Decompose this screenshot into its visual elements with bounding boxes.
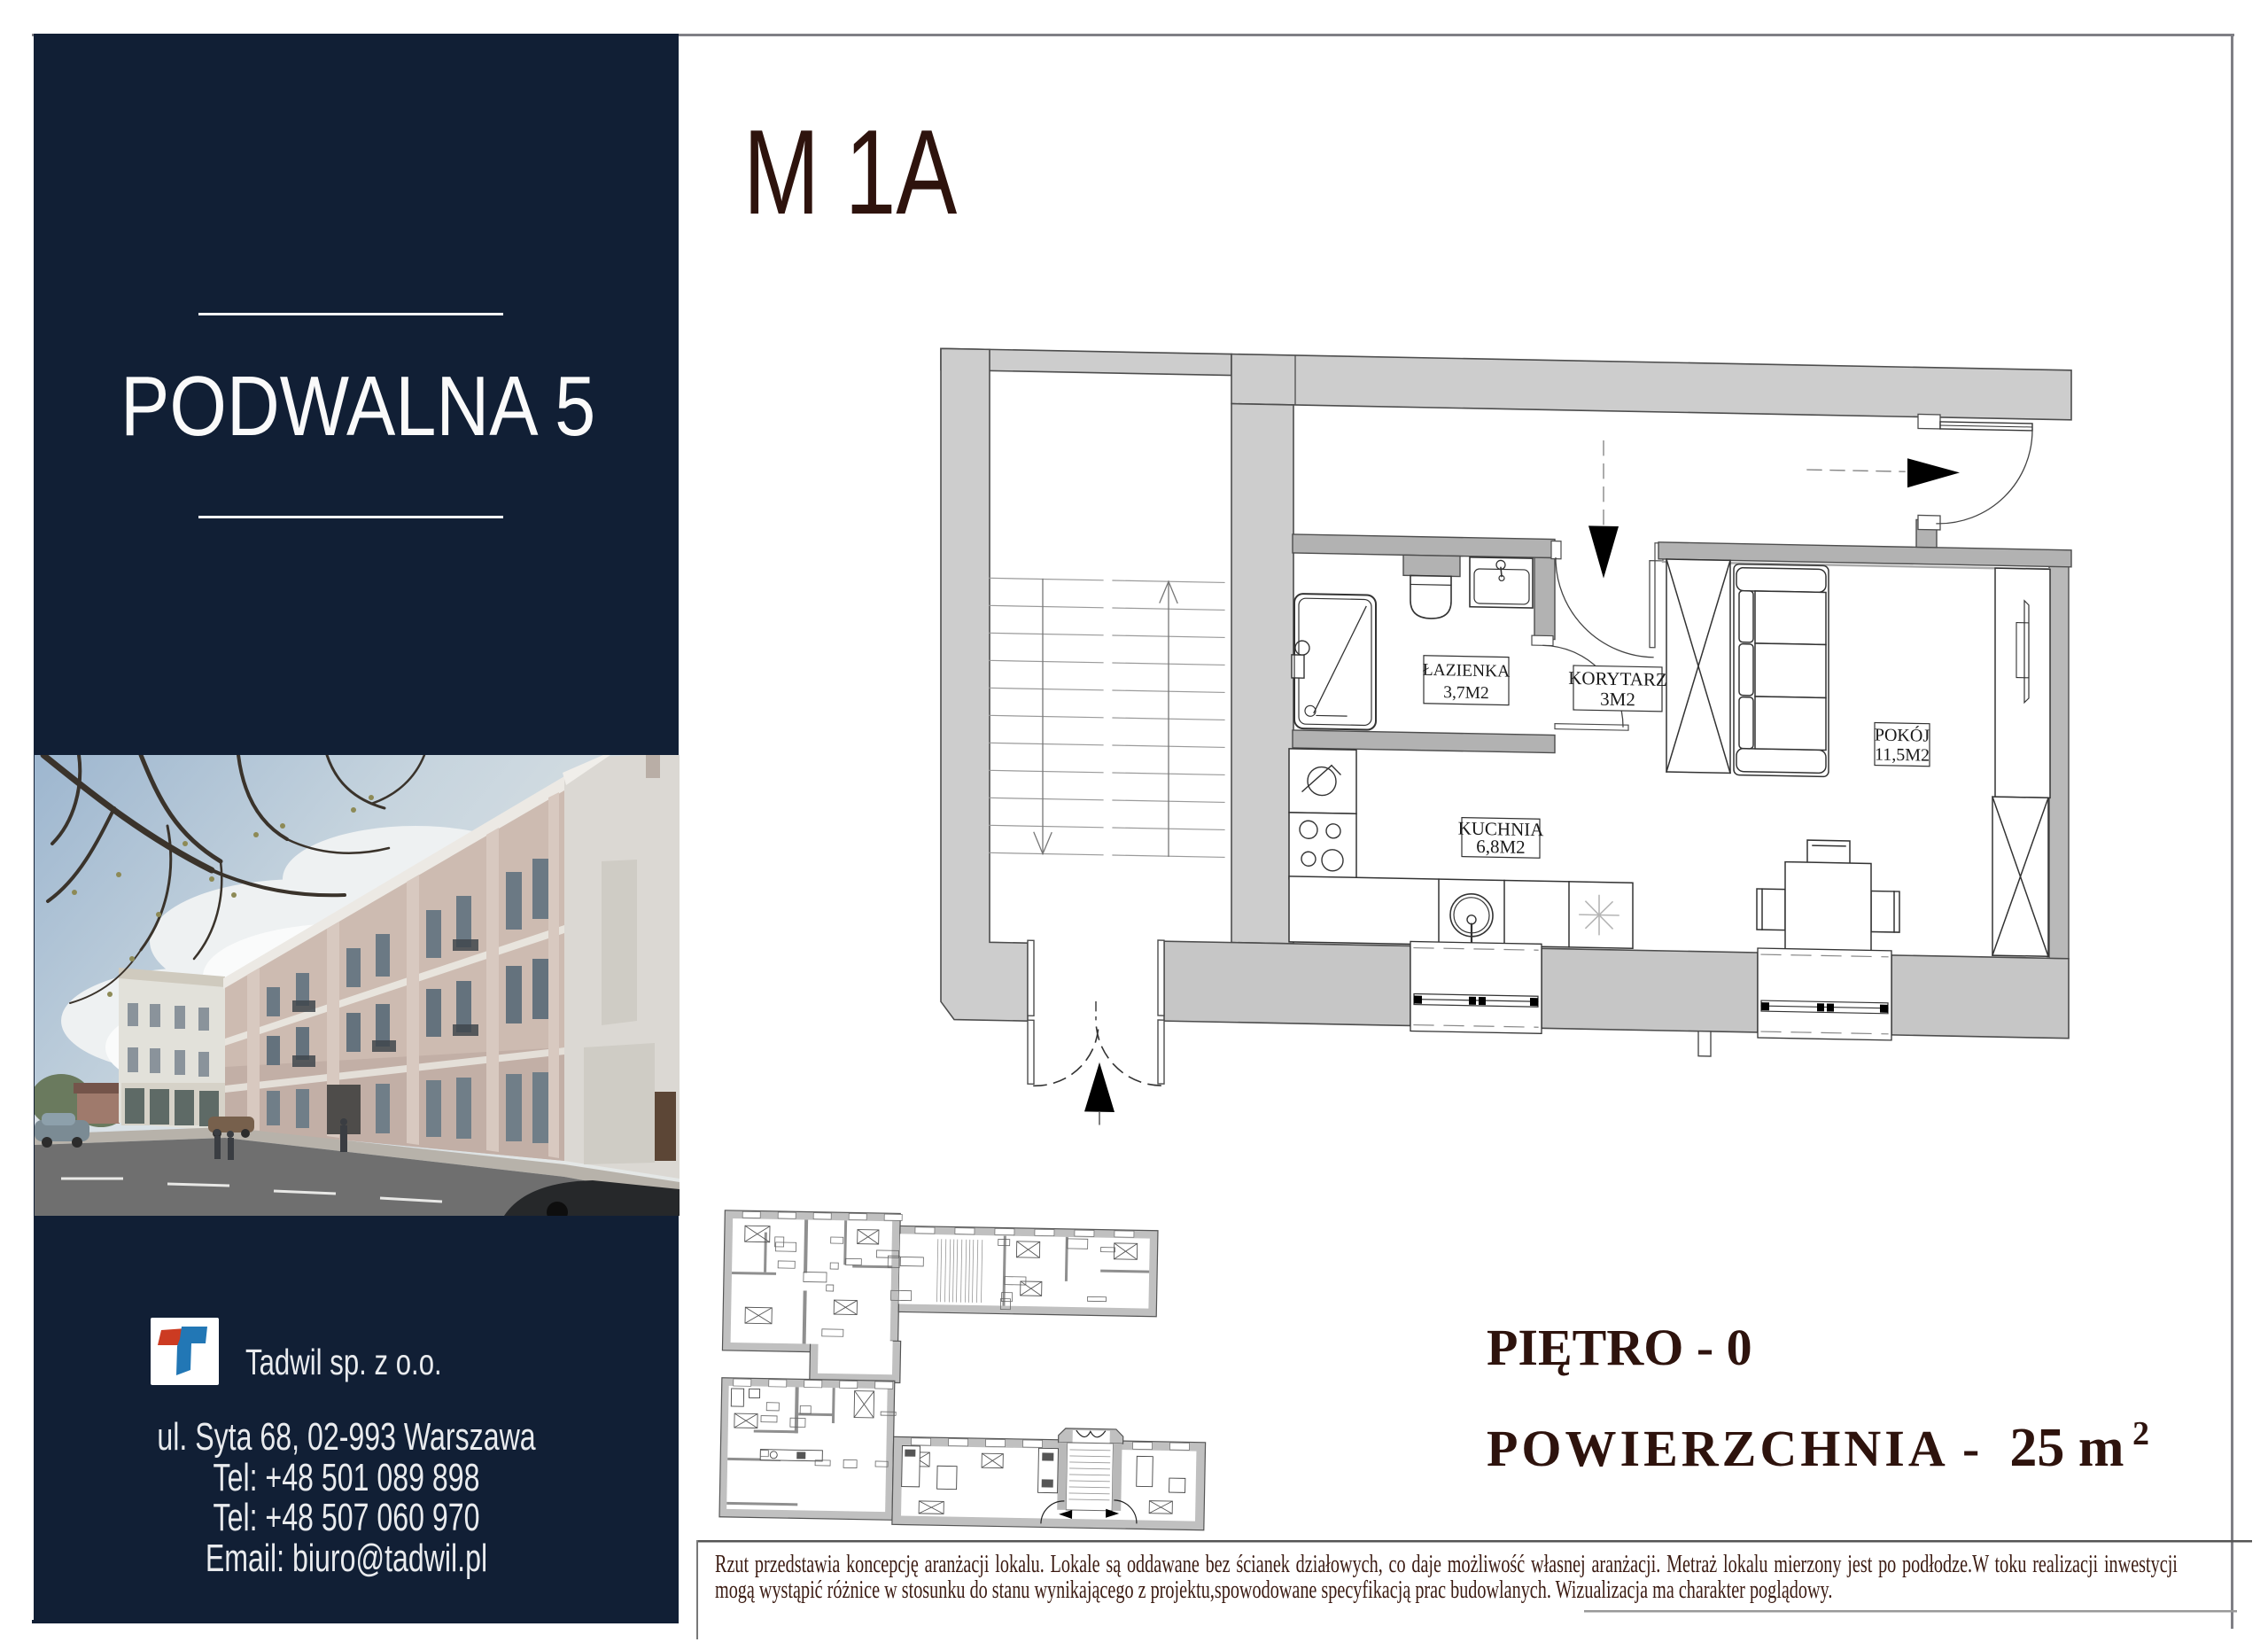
svg-text:ŁAZIENKA: ŁAZIENKA xyxy=(1423,661,1511,681)
svg-text:KORYTARZ: KORYTARZ xyxy=(1568,667,1666,690)
svg-text:POKÓJ: POKÓJ xyxy=(1875,724,1930,746)
svg-text:3M2: 3M2 xyxy=(1600,689,1635,711)
svg-text:11,5M2: 11,5M2 xyxy=(1875,745,1930,766)
svg-text:6,8M2: 6,8M2 xyxy=(1476,836,1525,858)
svg-text:3,7M2: 3,7M2 xyxy=(1443,683,1488,703)
